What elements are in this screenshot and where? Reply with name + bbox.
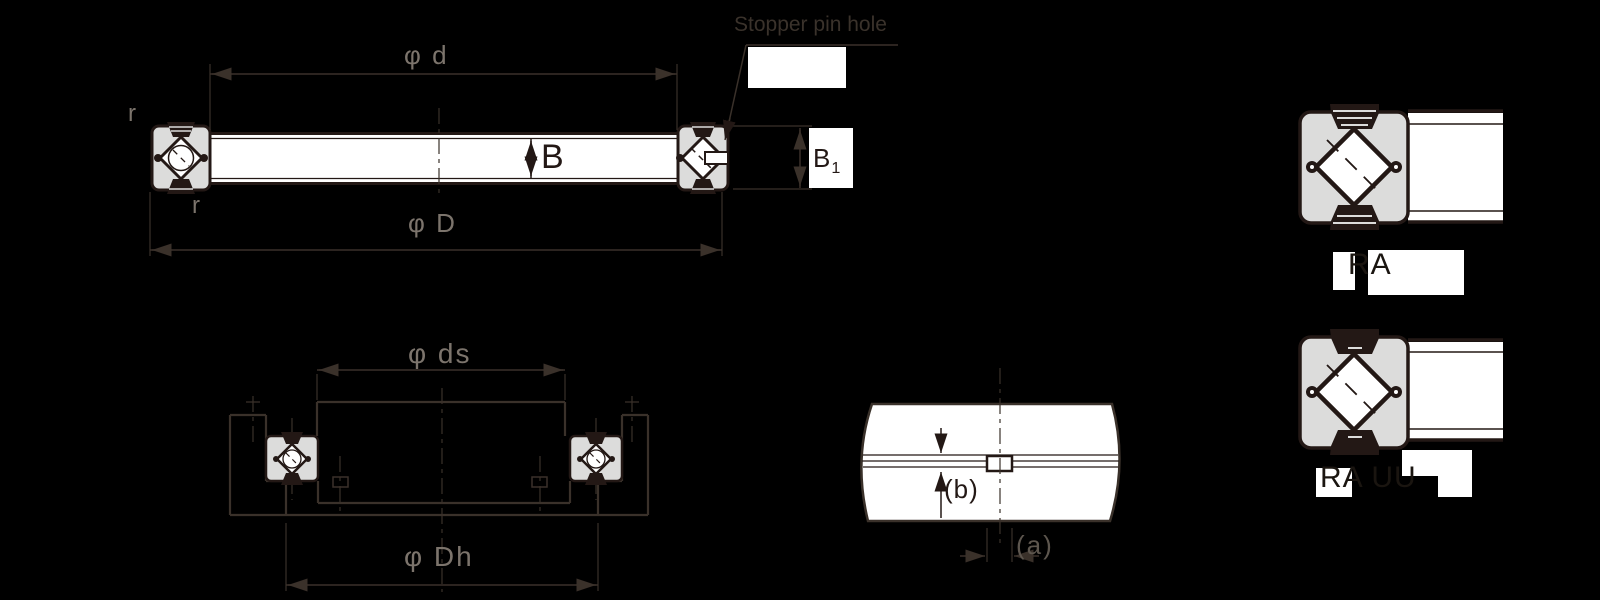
diagram-linework <box>0 0 1600 600</box>
right-bearing-section <box>676 122 728 194</box>
dim-phi-ds <box>317 370 565 400</box>
mounted-bearing-right <box>570 432 622 485</box>
dim-label-a: (a) <box>1016 530 1054 561</box>
seal-top <box>1330 329 1379 354</box>
dim-label-B: B <box>541 138 565 177</box>
fillet-label-bottom: r <box>192 192 202 220</box>
main-section-view <box>150 45 898 256</box>
dim-label-phi-ds: φ ds <box>408 338 472 370</box>
mounted-bearing-left <box>266 432 318 485</box>
type-figure-ra <box>1300 104 1503 295</box>
type-caption-ra: RA <box>1348 248 1392 282</box>
ring-band <box>210 132 678 185</box>
bearing-diagram: φ d φ D B B1 r r Stopper pin hole φ ds φ… <box>0 0 1600 600</box>
seal-bottom <box>1330 430 1379 455</box>
seal-bottom <box>1330 205 1379 230</box>
stopper-pin-hole <box>705 152 728 164</box>
dim-label-B1: B1 <box>813 143 841 178</box>
dim-label-phi-d: φ d <box>404 40 449 71</box>
dim-label-phi-D: φ D <box>408 208 457 239</box>
dim-label-b: (b) <box>944 474 979 505</box>
dim-label-phi-Dh: φ Dh <box>404 541 474 573</box>
stopper-pin-hole-label: Stopper pin hole <box>734 13 887 37</box>
shaft-step <box>317 402 565 436</box>
dim-phi-d <box>210 64 677 130</box>
left-bearing-section <box>152 122 210 194</box>
type-caption-ra-uu: RA UU <box>1320 461 1417 495</box>
fillet-label-top-left: r <box>128 100 138 128</box>
stopper-pin-hole-detail <box>861 368 1119 562</box>
